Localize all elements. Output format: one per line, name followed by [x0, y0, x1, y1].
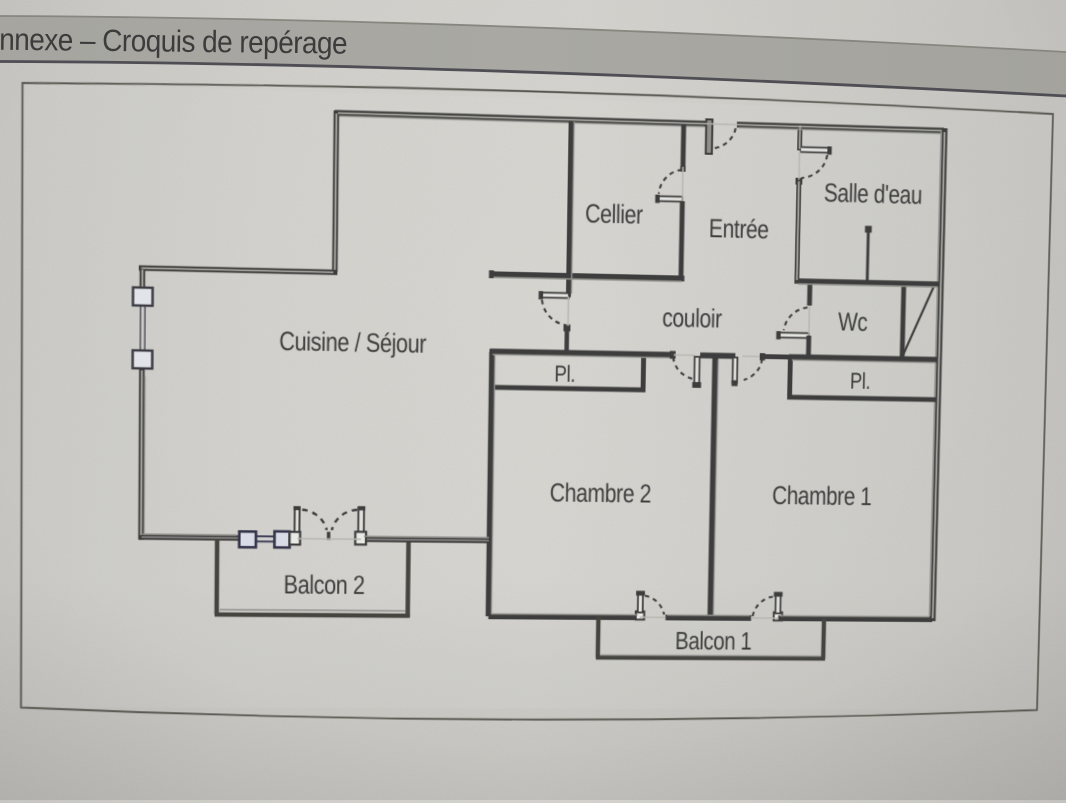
svg-text:Entrée: Entrée	[709, 214, 769, 245]
svg-text:Cuisine / Séjour: Cuisine / Séjour	[279, 326, 427, 358]
svg-text:Wc: Wc	[838, 307, 869, 337]
svg-text:Chambre 2: Chambre 2	[549, 478, 651, 508]
svg-text:Chambre 1: Chambre 1	[772, 481, 872, 511]
svg-text:Salle d'eau: Salle d'eau	[824, 178, 923, 210]
svg-text:Balcon 2: Balcon 2	[283, 570, 364, 600]
svg-text:Balcon 1: Balcon 1	[675, 628, 752, 656]
svg-text:couloir: couloir	[662, 303, 722, 333]
svg-text:Pl.: Pl.	[850, 369, 871, 395]
svg-text:Cellier: Cellier	[585, 199, 643, 230]
svg-text:Pl.: Pl.	[554, 362, 575, 388]
